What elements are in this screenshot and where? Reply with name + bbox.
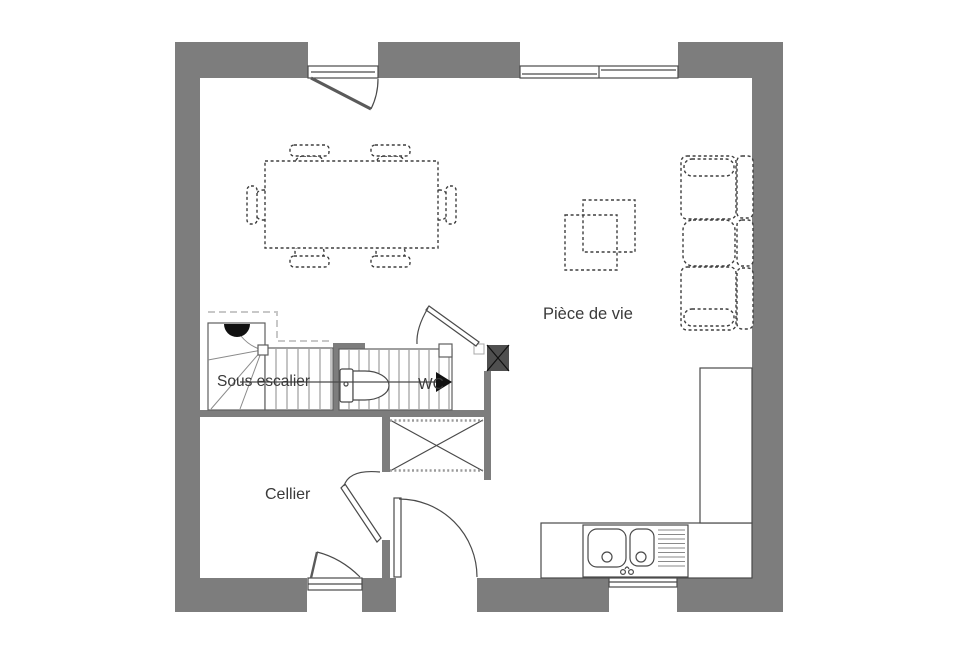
wc-door-leaf: [426, 306, 479, 346]
sofa-back-cushion: [737, 268, 753, 329]
sofa: [681, 156, 753, 330]
chair-back: [290, 145, 329, 156]
wall-stairs-wc-divider: [333, 343, 339, 415]
wall-right: [752, 42, 783, 612]
entrance-door: [394, 498, 477, 577]
entrance-door-swing: [399, 499, 477, 577]
sofa-back-cushion: [737, 220, 753, 266]
cellar-window-leaf: [311, 552, 317, 578]
chair-back: [371, 145, 410, 156]
wall-cellar-door-jamb: [382, 540, 390, 578]
front-door-leaf: [311, 78, 371, 109]
wall-bottom-right: [677, 578, 783, 612]
cellar-window-swing: [317, 552, 360, 577]
label-living-room: Pièce de vie: [543, 305, 633, 323]
sofa-seat: [683, 220, 735, 266]
label-cellar: Cellier: [265, 486, 311, 503]
sliding-closet: [390, 420, 483, 471]
wc-door: [417, 306, 479, 346]
stair-node-post: [258, 345, 268, 355]
sofa-armrest: [684, 159, 734, 176]
wall-left: [175, 42, 200, 612]
wall-top-right: [678, 42, 783, 78]
stair-end-post: [439, 344, 452, 357]
sink-bowl-right: [630, 529, 654, 566]
wall-top-left: [175, 42, 308, 78]
front-door-swing: [371, 79, 378, 109]
wall-closet-right: [484, 371, 491, 480]
wall-top-mid: [378, 42, 520, 78]
dining-table: [265, 161, 438, 248]
kitchen: [541, 368, 752, 578]
sliding-window: [520, 66, 678, 78]
floor-plan: Pièce de vie Sous escalier Cellier WC: [0, 0, 960, 654]
label-under-stairs: Sous escalier: [217, 373, 310, 390]
wall-bottom-mid-right: [477, 578, 609, 612]
entrance-door-leaf: [394, 498, 401, 577]
wall-closet-left: [382, 412, 390, 472]
wall-stairs-bottom: [200, 410, 487, 417]
coffee-tables: [565, 200, 635, 270]
floor-plan-drawing: Pièce de vie Sous escalier Cellier WC: [0, 0, 960, 654]
chair-back: [290, 256, 329, 267]
coffee-table: [583, 200, 635, 252]
front-door: [308, 66, 378, 109]
wall-bottom-left: [175, 578, 307, 612]
coffee-table: [565, 215, 617, 270]
wc-door-swing: [417, 308, 428, 344]
technical-duct: [487, 345, 509, 371]
cellar-door-leaf: [341, 484, 381, 542]
tall-cabinet: [700, 368, 752, 523]
chair-back: [446, 186, 456, 224]
cellar-door: [341, 472, 381, 542]
sink-bowl-left: [588, 529, 626, 567]
sofa-back-cushion: [737, 156, 753, 218]
wall-bottom-mid-left: [362, 578, 396, 612]
label-wc: WC: [418, 376, 444, 393]
sofa-armrest: [684, 309, 734, 326]
cellar-window: [308, 552, 362, 590]
chair-back: [371, 256, 410, 267]
cellar-door-swing: [344, 472, 380, 486]
chair-back: [247, 186, 257, 224]
